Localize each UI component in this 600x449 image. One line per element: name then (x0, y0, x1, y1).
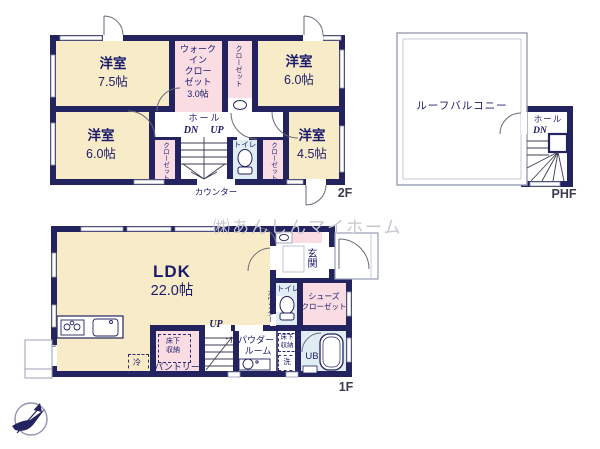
powder-label-line1: パウダー (238, 336, 274, 345)
room-2f-yoshitsu-7-5 (56, 41, 169, 106)
up-label-2f: UP (210, 126, 223, 136)
room-label-2f-7-5-size: 7.5帖 (98, 76, 128, 89)
dn-label-2f: DN (184, 126, 198, 136)
watermark: ㈱あんしんマイホーム (213, 213, 403, 238)
counter-2f-label: カウンター (195, 188, 238, 197)
room-label-2f-6-0b-name: 洋室 (88, 129, 115, 143)
room-label-2f-6-0a-size: 6.0帖 (284, 74, 314, 87)
room-2f-yoshitsu-6-0-b (56, 112, 149, 179)
room-label-2f-6-0a-name: 洋室 (286, 55, 313, 69)
ub-label: UB (305, 352, 318, 362)
room-1f-genkan (276, 243, 329, 278)
room-label-2f-4-5-size: 4.5帖 (297, 148, 327, 161)
room-label-2f-7-5-name: 洋室 (100, 57, 127, 71)
stairs-2f-floor (181, 137, 227, 179)
underfloor-powder-line1: 床下 (281, 335, 294, 342)
toilet-1f-label: トイレ (277, 285, 300, 293)
washer-label: 洗 (283, 358, 291, 366)
counter-1f-label: カウンター (265, 289, 272, 323)
shoes-closet-label-line1: シューズ (308, 293, 340, 301)
ldk-label-size: 22.0帖 (151, 284, 194, 299)
closet-top-label: クローゼット (235, 45, 242, 87)
closet-left-label: クローゼット (161, 142, 168, 181)
ldk-label-name: LDK (153, 263, 191, 280)
hall-phf-label: ホール (534, 115, 563, 124)
entrance-porch (335, 233, 378, 279)
toilet-2f-label: トイレ (234, 141, 257, 149)
underfloor-powder-line2: 収納 (281, 343, 294, 350)
pantry-label: パントリー (154, 363, 199, 372)
roof-balcony-label: ルーフバルコニー (416, 101, 507, 112)
wic-label-line3: クロー (184, 67, 211, 76)
floor2-label: 2F (338, 187, 353, 200)
closet-right-label: クローゼット (269, 142, 276, 181)
powder-label-line2: ルーム (245, 347, 272, 356)
room-label-2f-6-0b-size: 6.0帖 (86, 148, 116, 161)
floorplan-canvas: 洋室 7.5帖 ウォーク イン クロー ゼット 3.0帖 クローゼット 洋室 6… (0, 0, 600, 449)
wic-label-size: 3.0帖 (187, 90, 209, 99)
room-label-2f-4-5-name: 洋室 (299, 129, 326, 143)
dn-label-phf: DN (533, 127, 547, 137)
hall-2f-label: ホール (188, 114, 221, 123)
underfloor-pantry-line1: 床下 (166, 338, 180, 345)
shoes-closet-label-line2: クローゼット (302, 303, 347, 311)
wic-label-line2: イン (189, 56, 207, 65)
floor1-label: 1F (339, 381, 354, 394)
wic-label-line4: ゼット (184, 78, 211, 87)
fridge-label: 冷 (133, 359, 141, 367)
wic-label-line1: ウォーク (180, 45, 216, 54)
back-door-alcove (25, 340, 52, 378)
stairs-1f-floor (205, 331, 233, 371)
underfloor-pantry-line2: 収納 (166, 347, 180, 354)
phf-label: PHF (552, 188, 577, 201)
room-2f-yoshitsu-4-5 (289, 112, 339, 179)
compass-icon (12, 403, 47, 435)
genkan-label: 玄関 (305, 248, 315, 268)
up-label-1f: UP (209, 320, 222, 330)
